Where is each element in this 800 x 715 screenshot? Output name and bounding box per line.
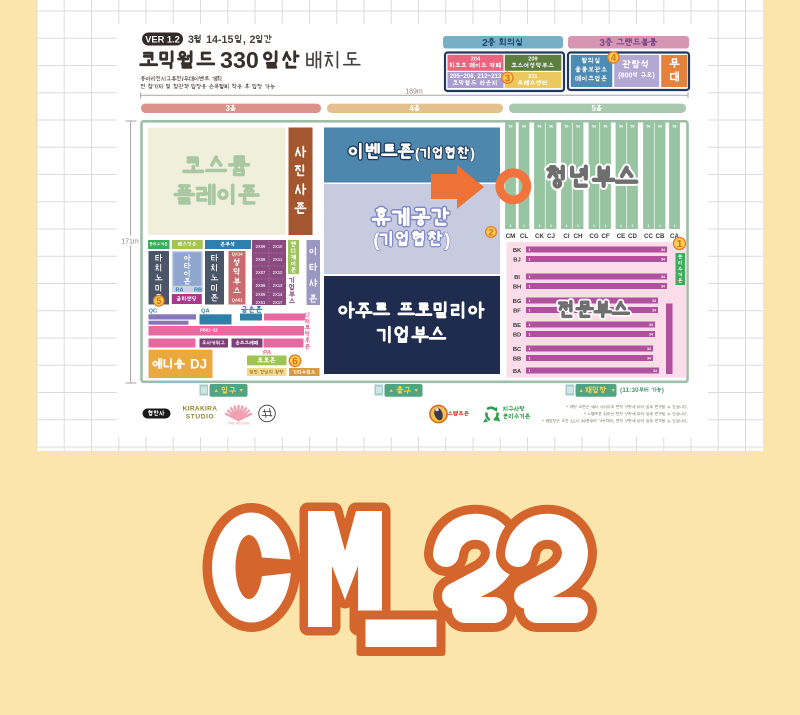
svg-text:RB: RB	[194, 288, 202, 294]
svg-text:2: 2	[482, 38, 488, 49]
svg-text:6: 6	[292, 356, 298, 367]
svg-text:1: 1	[523, 224, 525, 228]
svg-text:BJ: BJ	[513, 257, 520, 263]
svg-text:1: 1	[529, 347, 531, 351]
svg-text:3: 3	[599, 38, 605, 49]
svg-text:QA01: QA01	[232, 298, 243, 303]
svg-text:1: 1	[529, 369, 531, 373]
svg-text:2X05: 2X05	[256, 292, 266, 297]
svg-text:KIRAKIRA: KIRAKIRA	[183, 406, 218, 413]
svg-text:2X13: 2X13	[273, 283, 283, 288]
svg-text:5: 5	[156, 296, 161, 306]
svg-text:BA: BA	[513, 369, 522, 375]
svg-text:1: 1	[529, 285, 531, 289]
svg-text:.: .	[687, 406, 688, 411]
svg-text:CK: CK	[535, 233, 544, 240]
svg-text:56: 56	[522, 125, 526, 129]
svg-text:): )	[444, 230, 450, 251]
svg-text:2: 2	[250, 34, 256, 46]
svg-text:1: 1	[529, 275, 531, 279]
svg-text:/: /	[182, 76, 184, 83]
svg-text:34: 34	[661, 248, 665, 252]
svg-text:1: 1	[620, 224, 622, 228]
svg-text:BB: BB	[513, 356, 521, 362]
svg-text:DJ: DJ	[190, 357, 207, 372]
svg-text:56: 56	[549, 125, 553, 129]
svg-text:30: 30	[581, 419, 587, 425]
svg-text:RA: RA	[176, 288, 184, 294]
svg-text:56: 56	[604, 125, 608, 129]
svg-text:34: 34	[661, 258, 665, 262]
svg-text:CI: CI	[563, 233, 569, 240]
svg-text:(11:30: (11:30	[620, 387, 639, 394]
svg-text:1: 1	[529, 357, 531, 361]
svg-text:1: 1	[566, 224, 568, 228]
svg-text:VER 1.2: VER 1.2	[145, 34, 180, 44]
svg-text:56: 56	[658, 125, 662, 129]
svg-text:171m: 171m	[121, 239, 139, 246]
svg-text:2X06: 2X06	[256, 283, 266, 288]
svg-text:): )	[662, 387, 664, 394]
svg-text:BE: BE	[513, 323, 521, 329]
svg-text:1: 1	[529, 309, 531, 313]
svg-text:330: 330	[220, 47, 259, 73]
svg-text:CG: CG	[589, 233, 598, 240]
svg-text:1: 1	[529, 299, 531, 303]
svg-text:1: 1	[632, 224, 634, 228]
svg-text:CH: CH	[574, 233, 583, 240]
svg-text:1: 1	[593, 224, 595, 228]
svg-text:34: 34	[647, 347, 651, 351]
svg-text:CF: CF	[601, 233, 609, 240]
svg-text:2X12: 2X12	[273, 270, 283, 275]
svg-text:1: 1	[674, 224, 676, 228]
svg-text:QA: QA	[201, 308, 211, 314]
svg-text:56: 56	[538, 125, 542, 129]
svg-text:BK: BK	[513, 248, 522, 254]
svg-text:1: 1	[648, 224, 650, 228]
svg-text:BI: BI	[514, 275, 520, 281]
svg-text:56: 56	[619, 125, 623, 129]
svg-text:THE 4th COS: THE 4th COS	[228, 422, 250, 426]
svg-text:1: 1	[510, 224, 512, 228]
svg-text:34: 34	[653, 369, 657, 373]
svg-text:34: 34	[652, 309, 656, 313]
svg-text:*: *	[584, 412, 586, 418]
svg-text:2X14: 2X14	[273, 292, 283, 297]
svg-text:56: 56	[673, 125, 677, 129]
svg-text:2X10: 2X10	[273, 244, 283, 249]
svg-text:CE: CE	[617, 233, 626, 240]
svg-text:2X17: 2X17	[273, 300, 283, 305]
svg-text:.: .	[687, 413, 688, 418]
svg-text:56: 56	[631, 125, 635, 129]
svg-text:.: .	[687, 420, 688, 425]
svg-text:34: 34	[652, 299, 656, 303]
svg-text:CJ: CJ	[547, 233, 555, 240]
svg-text:1: 1	[529, 248, 531, 252]
svg-text:STUDIO: STUDIO	[186, 414, 215, 421]
svg-text:1: 1	[659, 224, 661, 228]
svg-text:205~208,: 205~208,	[450, 73, 476, 80]
svg-text:CM: CM	[506, 233, 516, 240]
svg-text:34: 34	[647, 357, 651, 361]
svg-text:56: 56	[576, 125, 580, 129]
svg-text:QA14: QA14	[232, 252, 243, 257]
svg-text:BC: BC	[513, 347, 522, 353]
svg-text:34: 34	[661, 275, 665, 279]
svg-text:2: 2	[488, 227, 493, 238]
svg-text:3: 3	[505, 73, 511, 84]
svg-text:,: ,	[243, 34, 246, 46]
svg-text:2X08: 2X08	[256, 257, 266, 262]
svg-text:BF: BF	[513, 308, 521, 314]
svg-text:1: 1	[529, 333, 531, 337]
svg-text:11: 11	[570, 419, 575, 425]
svg-text:14-15: 14-15	[206, 34, 233, 46]
svg-text:PB01~22: PB01~22	[200, 328, 218, 333]
svg-text:3: 3	[226, 104, 231, 113]
svg-text:2X11: 2X11	[273, 257, 283, 262]
svg-text:2X01: 2X01	[256, 300, 266, 305]
svg-text:CD: CD	[628, 233, 637, 240]
svg-text:2X09: 2X09	[256, 244, 266, 249]
svg-text:1: 1	[577, 224, 579, 228]
svg-text:1: 1	[605, 224, 607, 228]
svg-text:189m: 189m	[405, 89, 423, 96]
svg-text:2X07: 2X07	[256, 270, 266, 275]
svg-text:PA: PA	[263, 350, 272, 357]
svg-text:1: 1	[529, 323, 531, 327]
svg-text:*: *	[542, 419, 544, 425]
svg-text:209: 209	[528, 56, 537, 62]
svg-text:(800: (800	[618, 71, 632, 79]
svg-text:1: 1	[539, 224, 541, 228]
svg-text:QC: QC	[149, 308, 159, 314]
svg-text:5: 5	[592, 104, 597, 113]
svg-text:56: 56	[509, 125, 513, 129]
svg-text:34: 34	[649, 333, 653, 337]
svg-text:56: 56	[647, 125, 651, 129]
svg-text:): )	[470, 146, 475, 163]
svg-text:56: 56	[592, 125, 596, 129]
svg-text:BG: BG	[513, 299, 522, 305]
svg-text:3: 3	[188, 34, 194, 46]
svg-text:1: 1	[529, 258, 531, 262]
svg-text:34: 34	[649, 323, 653, 327]
svg-text:(: (	[373, 230, 380, 251]
svg-text:4: 4	[611, 53, 617, 64]
svg-text:212~213: 212~213	[477, 73, 502, 80]
svg-text:CB: CB	[656, 233, 665, 240]
svg-text:1: 1	[550, 224, 552, 228]
svg-text:*: *	[566, 405, 568, 411]
svg-text:BD: BD	[513, 332, 521, 338]
svg-text:1: 1	[677, 238, 683, 250]
svg-text:56: 56	[565, 125, 569, 129]
svg-text:211: 211	[528, 74, 537, 80]
svg-text:CL: CL	[520, 233, 528, 240]
svg-text:204: 204	[471, 56, 481, 62]
svg-text:BH: BH	[513, 284, 521, 290]
svg-text:4: 4	[410, 104, 415, 113]
svg-text:34: 34	[661, 285, 665, 289]
svg-text:CC: CC	[644, 233, 653, 240]
